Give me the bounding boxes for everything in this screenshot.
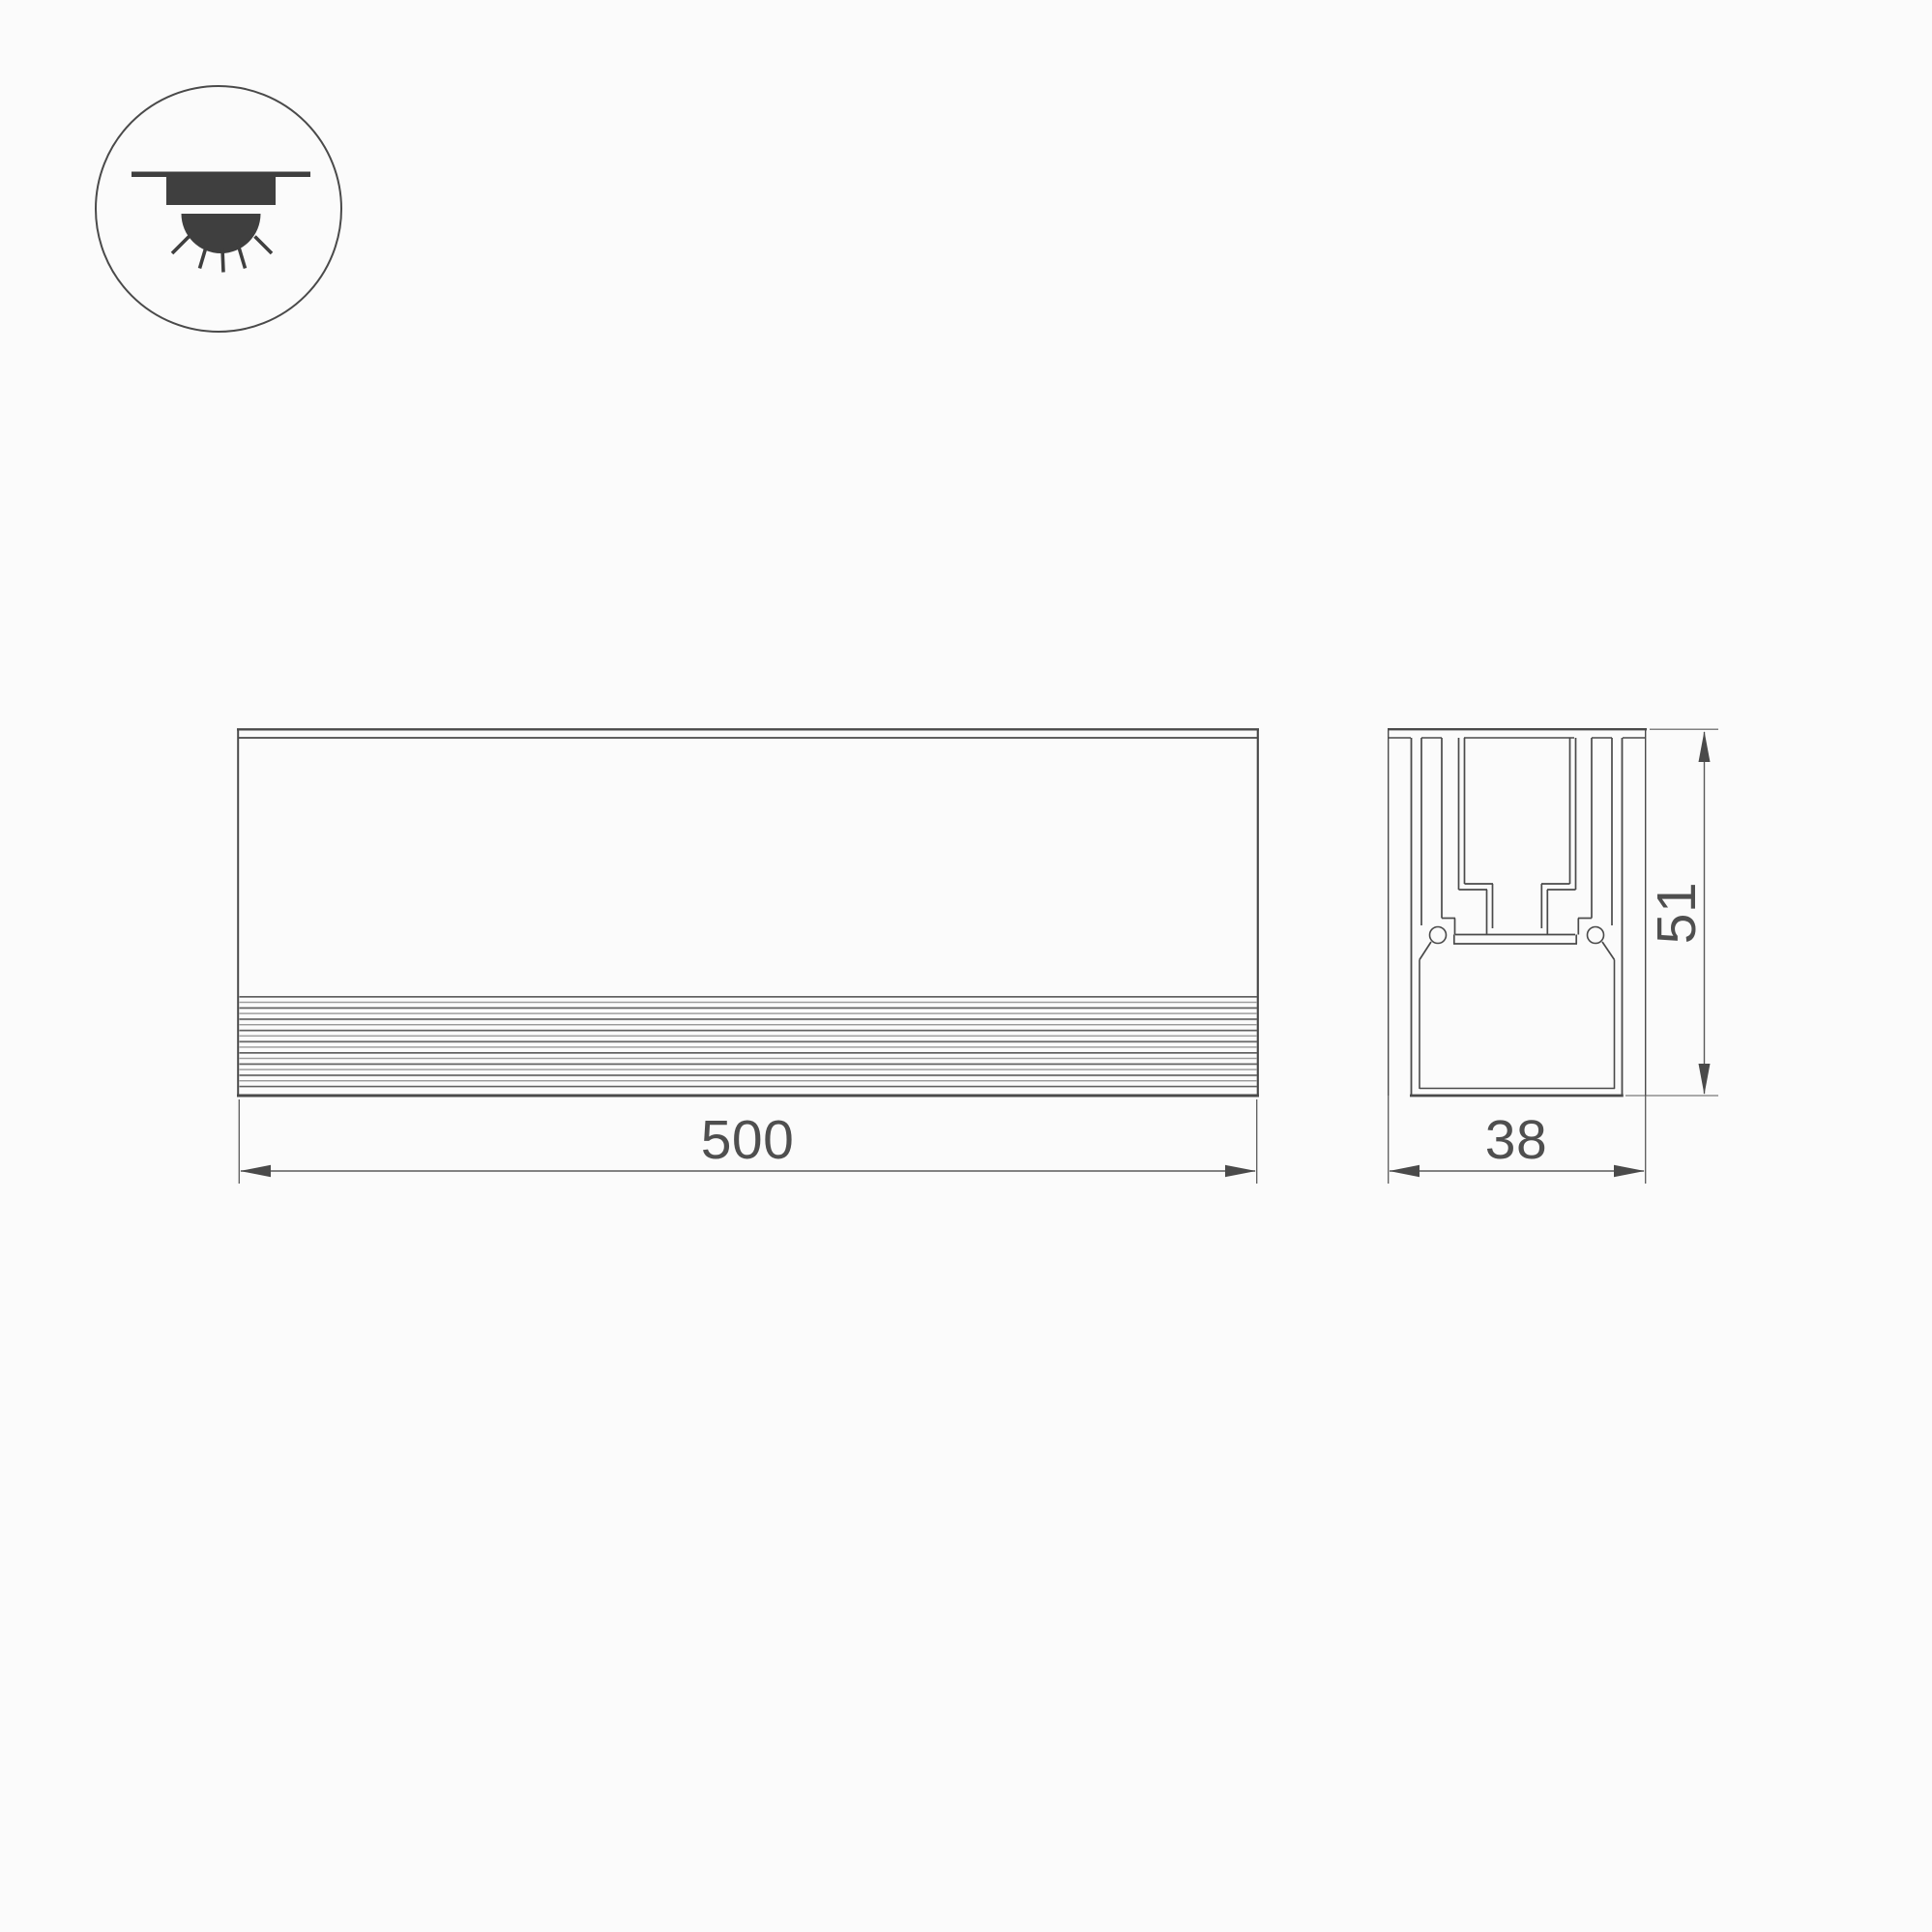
dimension-width: 38 (1389, 1096, 1646, 1184)
section-view (1388, 729, 1647, 1096)
arrowhead-left (1390, 1165, 1420, 1177)
light-ray (239, 246, 246, 269)
arrowhead-left (240, 1165, 271, 1177)
drawing-canvas: 500 38 51 (0, 0, 1932, 1932)
recessed-housing (166, 174, 276, 205)
diffuser-stripe-band (240, 996, 1258, 1088)
light-ray (172, 237, 190, 254)
section-central-channel (1453, 738, 1577, 944)
section-outer-walls (1389, 729, 1646, 1096)
dimension-length: 500 (239, 1099, 1256, 1184)
arrowhead-up (1699, 731, 1711, 762)
lamp-dome (182, 214, 261, 253)
ball-detent (1430, 927, 1447, 944)
technical-drawing: 500 38 51 (0, 0, 1932, 1932)
light-ray (222, 249, 223, 273)
section-hook-details (1420, 919, 1615, 960)
icon-circle (96, 86, 341, 332)
dimension-label-length: 500 (701, 1109, 795, 1171)
front-view (237, 729, 1259, 1096)
dimension-label-width: 38 (1485, 1109, 1547, 1171)
ball-detent (1588, 927, 1604, 944)
recessed-downlight-icon (96, 86, 341, 332)
arrowhead-right (1614, 1165, 1645, 1177)
section-inner-walls (1421, 738, 1612, 925)
light-ray (255, 237, 273, 254)
section-line (1602, 942, 1615, 960)
arrowhead-down (1699, 1064, 1711, 1095)
arrowhead-right (1225, 1165, 1256, 1177)
section-lamp-body (1410, 960, 1624, 1097)
dimension-height: 51 (1625, 729, 1718, 1096)
dimension-label-height: 51 (1646, 882, 1708, 944)
section-line (1420, 942, 1431, 960)
